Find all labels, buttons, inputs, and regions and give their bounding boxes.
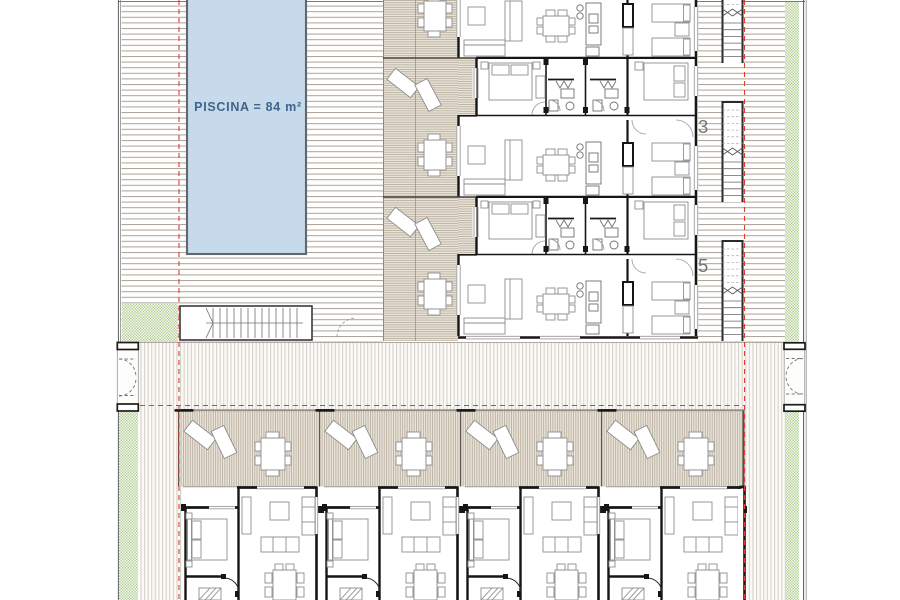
svg-text:3: 3	[698, 116, 708, 137]
svg-text:PISCINA = 84 m²: PISCINA = 84 m²	[194, 100, 302, 114]
svg-text:5: 5	[698, 255, 708, 276]
